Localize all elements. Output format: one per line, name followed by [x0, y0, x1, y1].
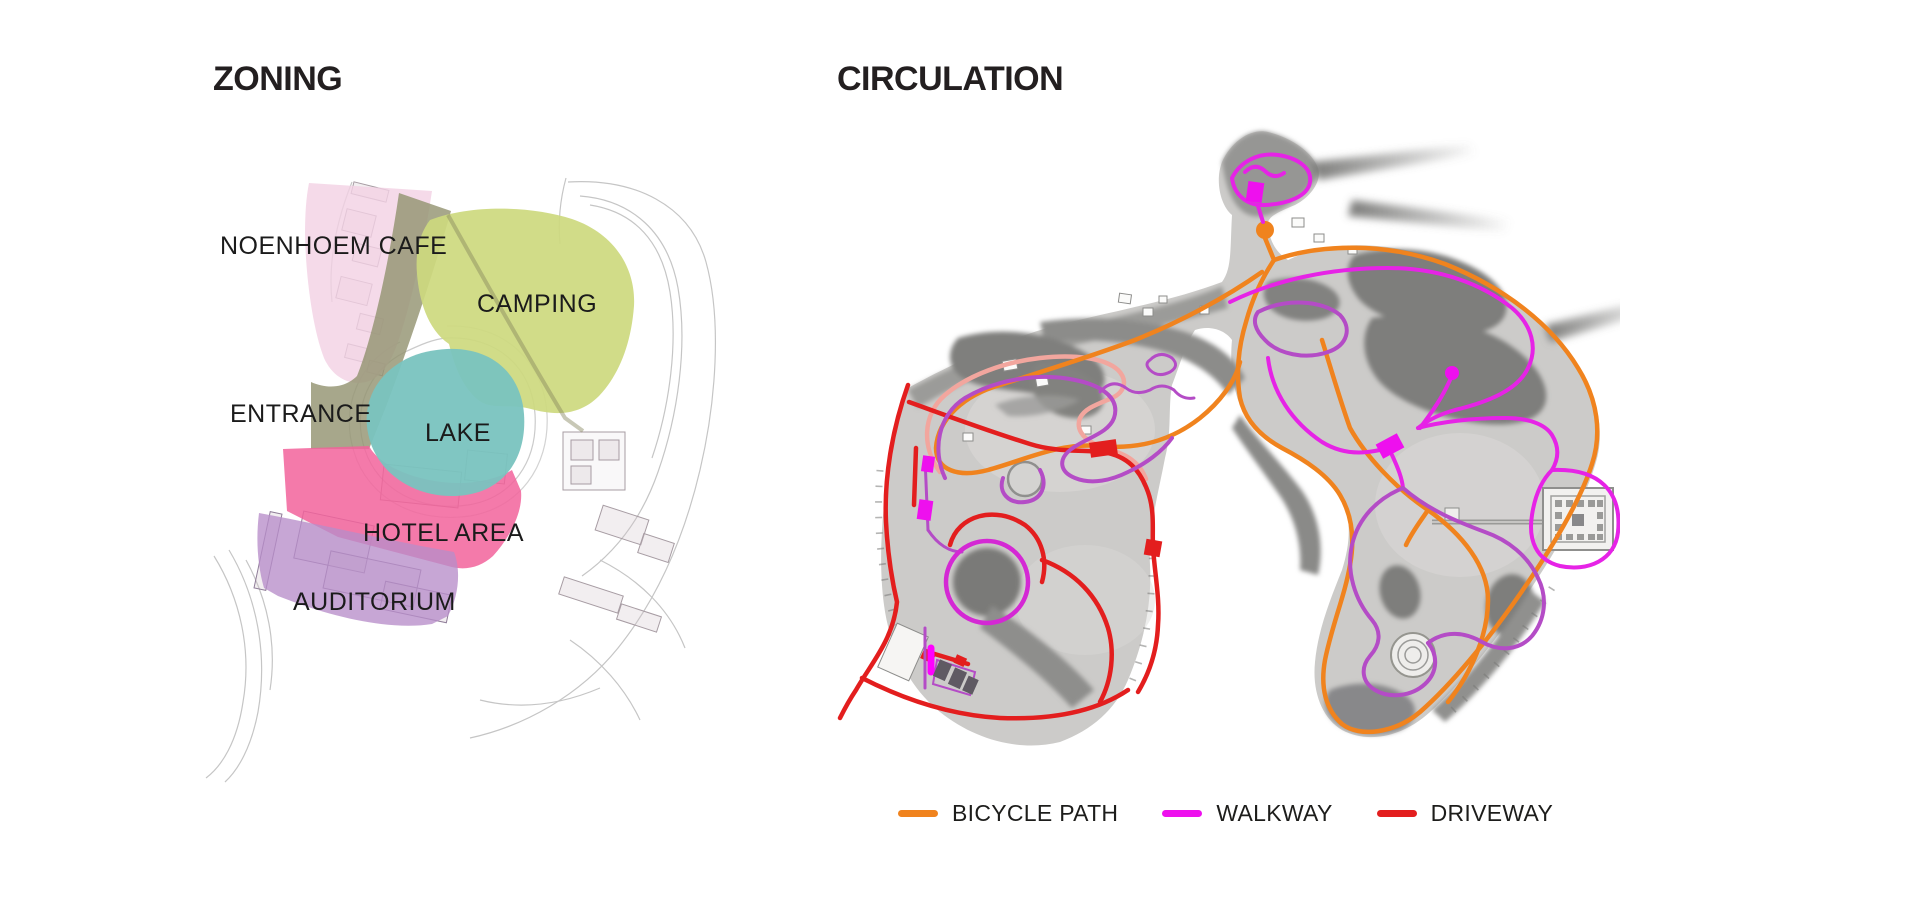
zoning-map: NOENHOEM CAFE CAMPING ENTRANCE LAKE HOTE… — [180, 140, 780, 800]
driveway-swatch — [1377, 810, 1417, 817]
bicycle-path-swatch — [898, 810, 938, 817]
zoning-panel-title: ZONING — [213, 60, 342, 99]
circulation-map — [820, 100, 1620, 800]
circulation-panel-title: CIRCULATION — [837, 60, 1063, 99]
legend-item-driveway: DRIVEWAY — [1377, 800, 1598, 827]
walkway-swatch — [1162, 810, 1202, 817]
round-structure — [1391, 633, 1435, 677]
zone-label-auditorium: AUDITORIUM — [293, 588, 456, 616]
zone-label-cafe: NOENHOEM CAFE — [220, 232, 447, 260]
small-circle-feature — [1008, 462, 1042, 496]
circulation-legend: BICYCLE PATH WALKWAY DRIVEWAY — [898, 800, 1597, 827]
zone-label-lake: LAKE — [425, 419, 491, 447]
bicycle-node-dot — [1256, 221, 1274, 239]
legend-item-bicycle-path: BICYCLE PATH — [898, 800, 1162, 827]
zone-label-camping: CAMPING — [477, 290, 597, 318]
driveway-label: DRIVEWAY — [1431, 800, 1554, 827]
zone-label-hotel: HOTEL AREA — [363, 519, 524, 547]
bicycle-path-label: BICYCLE PATH — [952, 800, 1118, 827]
zone-label-entrance: ENTRANCE — [230, 400, 372, 428]
walkway-label: WALKWAY — [1216, 800, 1332, 827]
legend-item-walkway: WALKWAY — [1162, 800, 1376, 827]
